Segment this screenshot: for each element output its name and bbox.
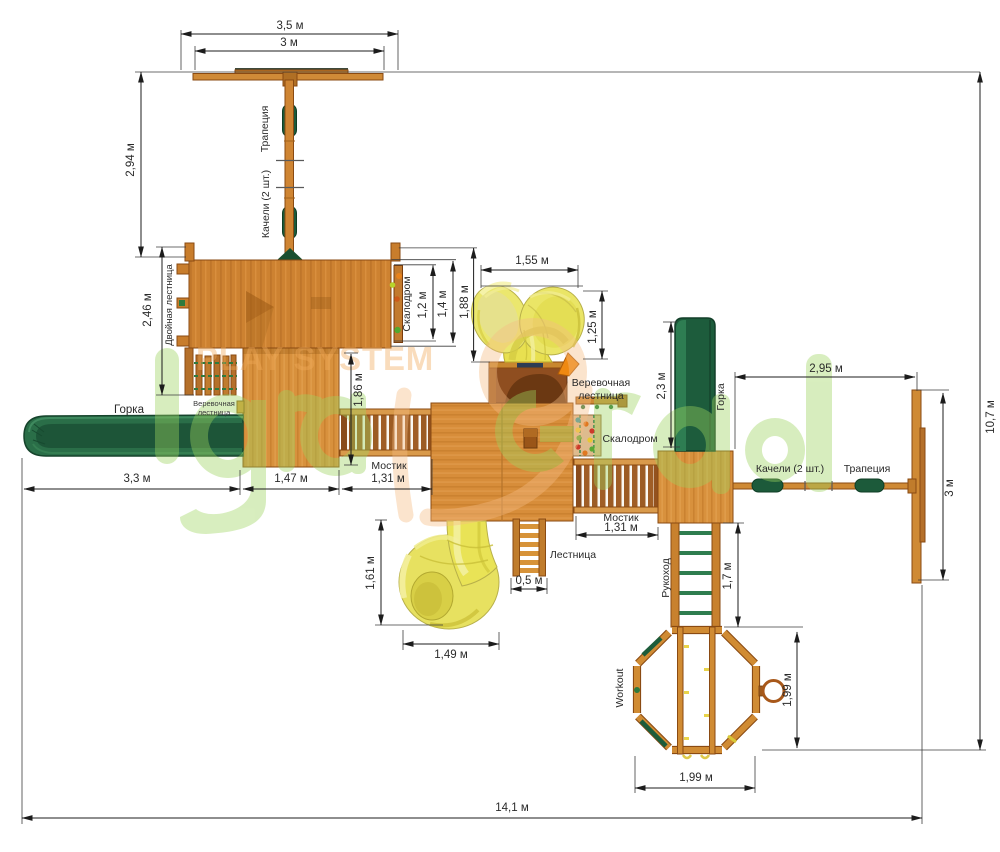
svg-text:Горка: Горка xyxy=(114,404,145,416)
svg-text:1,99 м: 1,99 м xyxy=(679,772,713,784)
svg-text:Workout: Workout xyxy=(614,668,626,707)
svg-text:лестница: лестница xyxy=(198,408,231,417)
svg-text:Веревочная: Веревочная xyxy=(572,377,630,389)
svg-text:1,47 м: 1,47 м xyxy=(274,473,308,485)
svg-text:3 м: 3 м xyxy=(944,479,956,497)
svg-text:3,3 м: 3,3 м xyxy=(123,473,150,485)
svg-text:1,61 м: 1,61 м xyxy=(365,556,377,590)
svg-text:Рукоход: Рукоход xyxy=(660,558,672,598)
svg-text:2,46 м: 2,46 м xyxy=(142,293,154,327)
svg-text:14,1 м: 14,1 м xyxy=(495,802,529,814)
svg-text:Трапеция: Трапеция xyxy=(259,106,271,153)
svg-text:3 м: 3 м xyxy=(280,37,298,49)
svg-text:1,7 м: 1,7 м xyxy=(722,562,734,589)
svg-text:лестница: лестница xyxy=(578,390,624,402)
svg-text:2,3 м: 2,3 м xyxy=(656,372,668,399)
svg-text:3,5 м: 3,5 м xyxy=(276,20,303,32)
svg-text:1,55 м: 1,55 м xyxy=(515,255,549,267)
svg-text:Двойная лестница: Двойная лестница xyxy=(164,264,175,346)
svg-text:10,7 м: 10,7 м xyxy=(985,400,997,434)
svg-text:Горка: Горка xyxy=(715,383,727,410)
svg-text:0,5 м: 0,5 м xyxy=(515,575,542,587)
svg-text:Качели (2 шт.): Качели (2 шт.) xyxy=(756,463,824,475)
svg-text:1,88 м: 1,88 м xyxy=(459,285,471,319)
svg-text:2,95 м: 2,95 м xyxy=(809,363,843,375)
svg-text:Скалодром: Скалодром xyxy=(401,276,413,331)
svg-text:2,94 м: 2,94 м xyxy=(125,143,137,177)
svg-text:1,31 м: 1,31 м xyxy=(371,473,405,485)
svg-text:Качели (2 шт.): Качели (2 шт.) xyxy=(260,170,272,238)
svg-text:1,25 м: 1,25 м xyxy=(587,310,599,344)
svg-text:1,86 м: 1,86 м xyxy=(353,373,365,407)
svg-text:1,2 м: 1,2 м xyxy=(417,291,429,318)
svg-text:Веревочная: Веревочная xyxy=(193,399,235,408)
svg-text:1,4 м: 1,4 м xyxy=(437,290,449,317)
svg-text:PLAY SYSTEM: PLAY SYSTEM xyxy=(196,340,434,377)
svg-text:1,49 м: 1,49 м xyxy=(434,649,468,661)
svg-text:1,99 м: 1,99 м xyxy=(782,673,794,707)
svg-text:Скалодром: Скалодром xyxy=(602,433,657,445)
svg-text:Мостик: Мостик xyxy=(603,512,639,524)
svg-text:Трапеция: Трапеция xyxy=(844,463,891,475)
svg-text:Лестница: Лестница xyxy=(550,549,596,561)
svg-text:Мостик: Мостик xyxy=(371,460,407,472)
